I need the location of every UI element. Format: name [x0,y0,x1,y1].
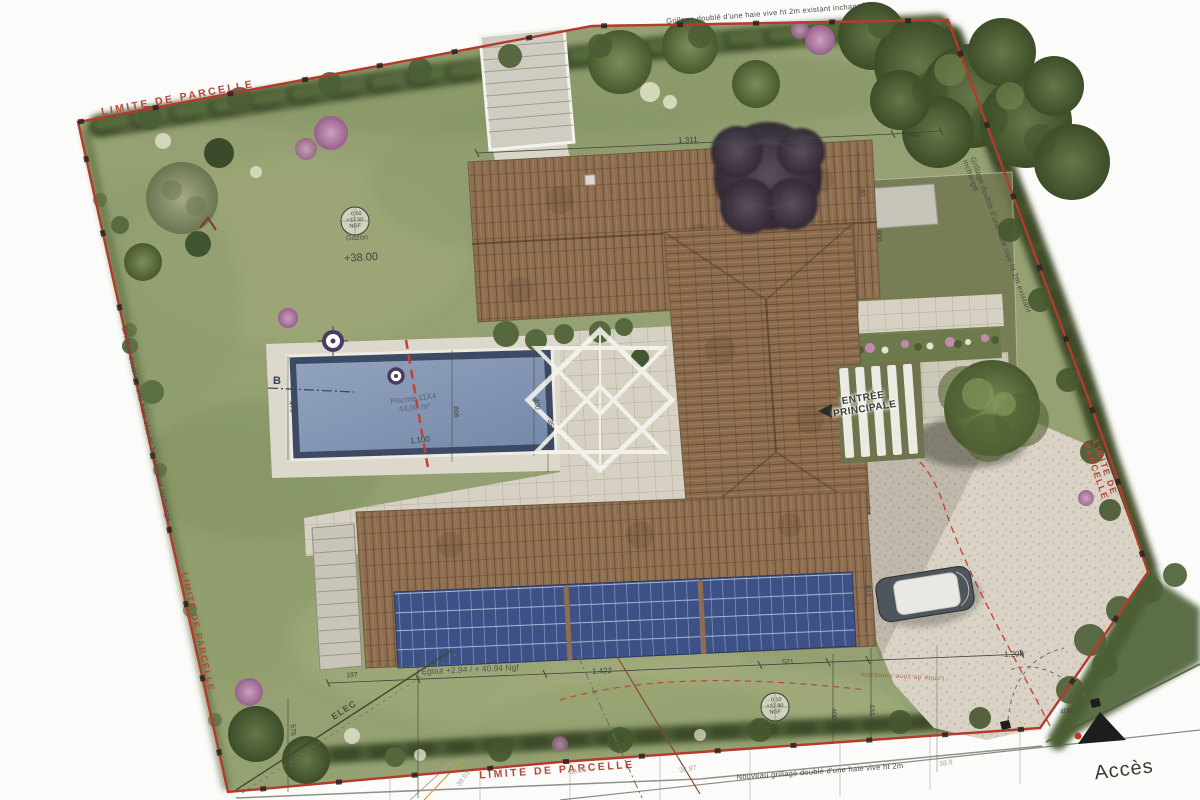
stairs-bottom [312,524,363,670]
stairs-top [480,28,574,150]
dark-tree [711,122,825,234]
roof-south-wing [356,492,876,668]
site-plan-graphics [0,0,1200,800]
chimney [585,175,596,186]
site-plan: LIMITE DE PARCELLELIMITE DE PARCELLELIMI… [0,0,1200,800]
